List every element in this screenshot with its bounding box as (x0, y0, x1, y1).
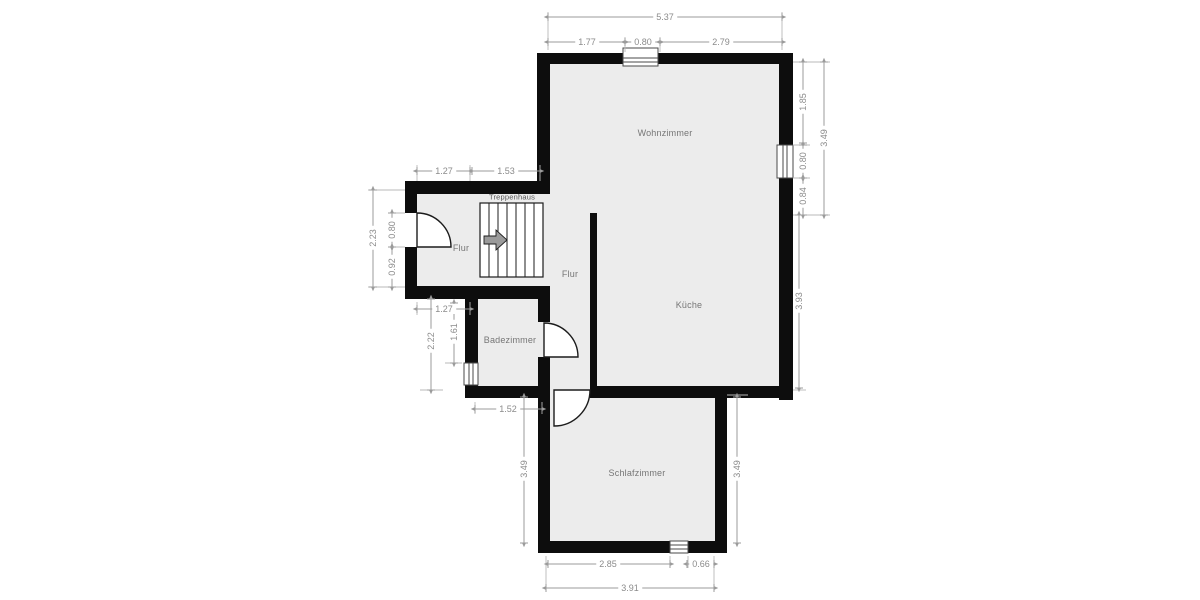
window-bedroom-bottom (670, 541, 688, 553)
wall-bedroom-bottom-left (538, 541, 670, 553)
window-bathroom-left (464, 363, 478, 385)
floor-bathroom (478, 299, 538, 386)
wall-staircase-top (405, 181, 550, 194)
wall-corridor-left-upper (538, 286, 550, 322)
wall-bottom-band-right (590, 386, 793, 398)
wall-bath-left-upper (465, 286, 478, 363)
wall-bedroom-left (538, 398, 550, 553)
floorplan-canvas: Wohnzimmer Küche Flur Flur Treppenhaus B… (0, 0, 1200, 600)
wall-living-left (537, 53, 550, 194)
wall-left-above-door (405, 181, 417, 213)
wall-interior-corridor-kitchen (590, 213, 597, 386)
window-living-right (777, 145, 793, 178)
wall-bedroom-bottom-right (688, 541, 727, 553)
window-living-top (623, 48, 658, 66)
wall-bedroom-right (715, 398, 727, 553)
wall-bottom-band-left (465, 386, 550, 398)
wall-right-lower (779, 178, 793, 400)
wall-right-upper (779, 53, 793, 145)
staircase-symbol (480, 203, 543, 277)
wall-top-right (658, 53, 793, 64)
floorplan-drawing (0, 0, 1200, 600)
